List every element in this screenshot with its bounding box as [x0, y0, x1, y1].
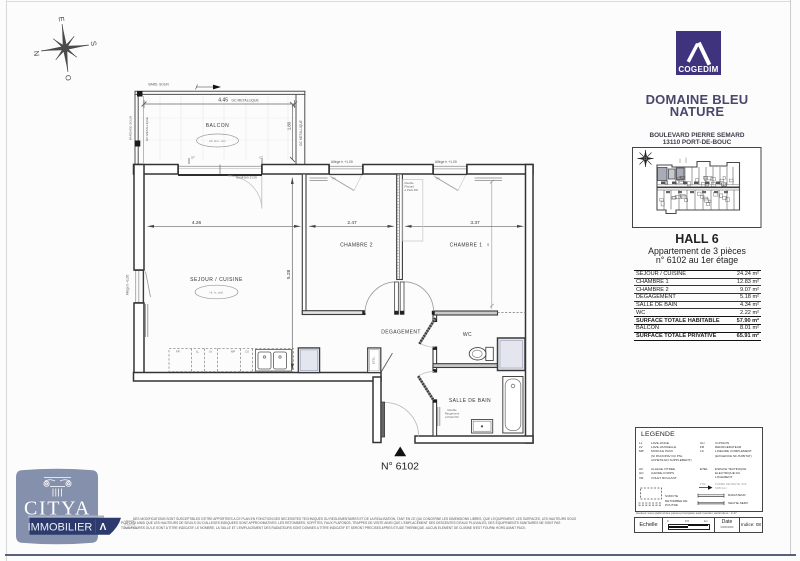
svg-text:Ht. fx. plaf.: Ht. fx. plaf. — [209, 291, 224, 295]
svg-text:à Pack PAI: à Pack PAI — [405, 188, 419, 192]
svg-text:SEJOUR / CUISINE: SEJOUR / CUISINE — [190, 277, 243, 283]
svg-text:S: S — [89, 40, 99, 46]
svg-text:MP: MP — [231, 350, 235, 354]
svg-text:1.80: 1.80 — [287, 121, 292, 130]
svg-text:VR: VR — [436, 177, 440, 181]
svg-text:CU: CU — [245, 350, 249, 354]
svg-text:5.28: 5.28 — [286, 270, 292, 280]
svg-text:ETEL: ETEL — [372, 356, 376, 364]
svg-text:Seuil len 2 cm: Seuil len 2 cm — [236, 176, 257, 180]
svg-text:4.45: 4.45 — [218, 98, 228, 104]
svg-text:GC METALLIQUE: GC METALLIQUE — [232, 98, 260, 102]
svg-text:N: N — [32, 50, 42, 56]
svg-text:BARD. SOLIN: BARD. SOLIN — [149, 83, 170, 87]
svg-text:N° 6102: N° 6102 — [381, 461, 419, 473]
svg-text:CHAMBRE 2: CHAMBRE 2 — [340, 243, 373, 249]
svg-text:GC METALLIQUE: GC METALLIQUE — [145, 117, 149, 141]
svg-text:DEGAGEMENT: DEGAGEMENT — [381, 330, 421, 336]
svg-text:O: O — [63, 74, 73, 81]
svg-text:FR: FR — [176, 350, 180, 354]
svg-text:à Pack PAI: à Pack PAI — [445, 415, 459, 419]
svg-text:Allège h +1.00: Allège h +1.00 — [126, 275, 130, 296]
svg-text:E: E — [57, 16, 67, 22]
svg-text:SALLE DE BAIN: SALLE DE BAIN — [449, 398, 491, 404]
svg-text:IMMOBILIER: IMMOBILIER — [28, 522, 93, 534]
svg-text:3.37: 3.37 — [470, 220, 480, 226]
svg-text:COGEDIM: COGEDIM — [678, 65, 718, 74]
svg-text:2.47: 2.47 — [347, 220, 357, 226]
svg-text:Allège h +1.00: Allège h +1.00 — [435, 160, 457, 164]
svg-text:VR: VR — [332, 177, 336, 181]
svg-text:Alt. Ext. +1m: Alt. Ext. +1m — [209, 139, 227, 143]
svg-text:Λ: Λ — [100, 522, 107, 533]
svg-text:BARDAGE SOLIN: BARDAGE SOLIN — [129, 116, 133, 141]
svg-text:S?: S? — [191, 156, 195, 160]
svg-text:LV: LV — [209, 350, 212, 354]
svg-text:S: S — [487, 243, 490, 247]
svg-text:Allège h +1.00: Allège h +1.00 — [331, 160, 353, 164]
svg-text:BALCON: BALCON — [206, 123, 230, 129]
svg-text:CHAMBRE 1: CHAMBRE 1 — [450, 243, 483, 249]
svg-text:GC METALLIQUE: GC METALLIQUE — [299, 120, 303, 146]
svg-text:CT: CT — [259, 156, 263, 160]
svg-text:4.26: 4.26 — [192, 220, 202, 226]
svg-text:WC: WC — [463, 332, 472, 338]
svg-text:LL: LL — [196, 350, 200, 354]
